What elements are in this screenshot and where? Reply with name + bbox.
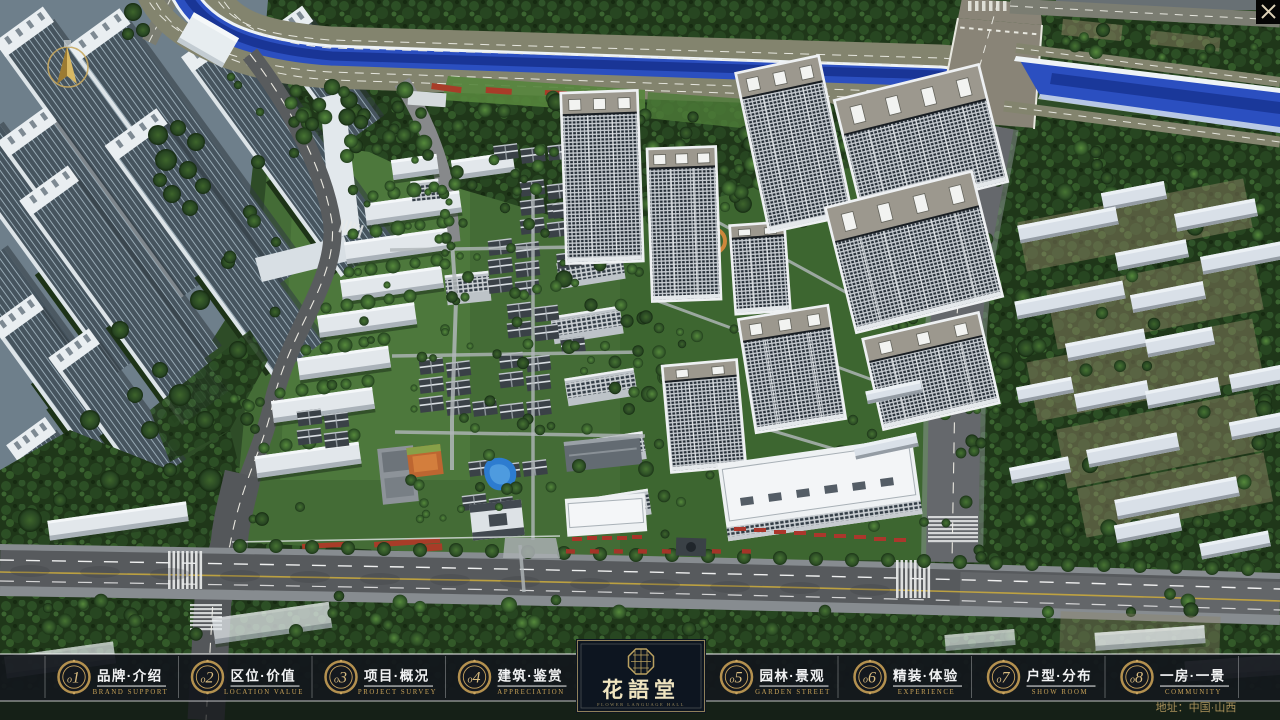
svg-text:SHOW ROOM: SHOW ROOM bbox=[1032, 689, 1088, 696]
svg-text:建筑·鉴赏: 建筑·鉴赏 bbox=[497, 668, 564, 684]
svg-text:花語堂: 花語堂 bbox=[602, 678, 680, 702]
svg-text:COMMUNITY: COMMUNITY bbox=[1165, 689, 1222, 696]
svg-text:BRAND SUPPORT: BRAND SUPPORT bbox=[93, 689, 169, 696]
svg-text:品牌·介绍: 品牌·介绍 bbox=[97, 668, 163, 684]
svg-text:GARDEN STREET: GARDEN STREET bbox=[755, 689, 831, 696]
svg-text:园林·景观: 园林·景观 bbox=[760, 668, 826, 684]
svg-text:FLOWER LANGUAGE HALL: FLOWER LANGUAGE HALL bbox=[597, 702, 685, 707]
svg-text:LOCATION VALUE: LOCATION VALUE bbox=[224, 689, 304, 696]
svg-text:地址：中国·山西: 地址：中国·山西 bbox=[1156, 700, 1237, 714]
svg-text:APPRECIATION: APPRECIATION bbox=[497, 689, 565, 696]
svg-text:区位·价值: 区位·价值 bbox=[231, 668, 297, 684]
svg-text:项目·概况: 项目·概况 bbox=[364, 668, 430, 684]
svg-text:PROJECT SURVEY: PROJECT SURVEY bbox=[358, 689, 437, 696]
svg-text:一房·一景: 一房·一景 bbox=[1160, 668, 1226, 684]
svg-text:精装·体验: 精装·体验 bbox=[893, 668, 959, 684]
svg-text:EXPERIENCE: EXPERIENCE bbox=[898, 689, 956, 696]
svg-text:户型·分布: 户型·分布 bbox=[1027, 668, 1093, 684]
